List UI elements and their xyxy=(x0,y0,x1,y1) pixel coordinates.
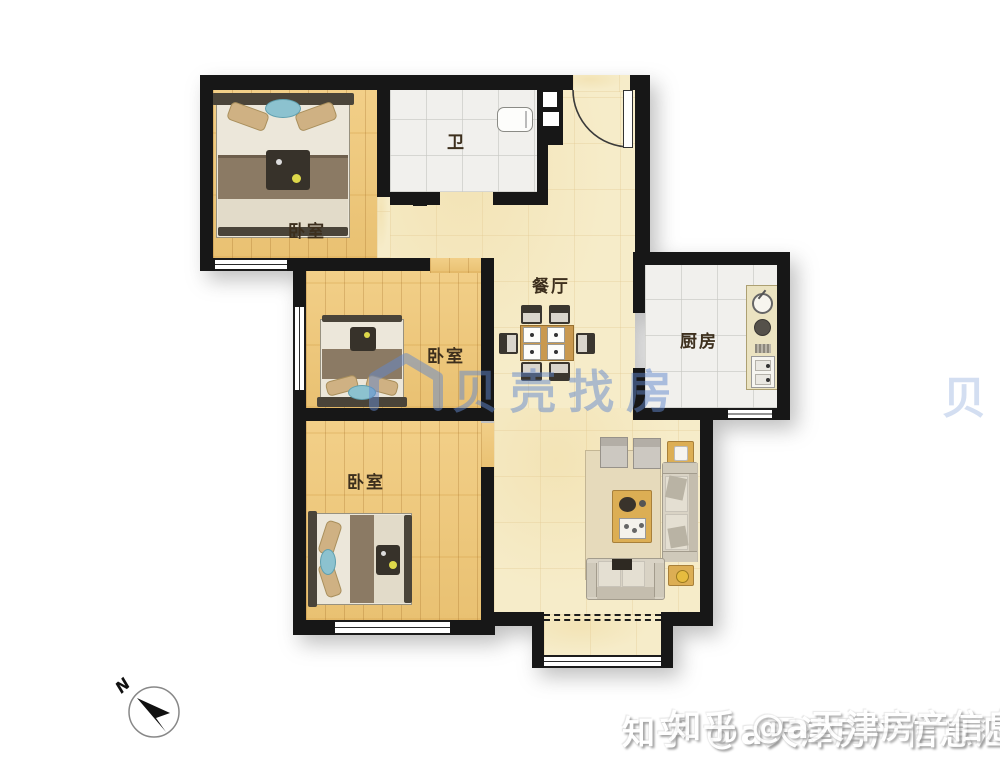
entrance-opening-floor xyxy=(573,75,630,92)
bathtub-divider xyxy=(525,111,527,128)
beike-watermark-text: 贝壳找房 xyxy=(452,356,684,422)
pot xyxy=(754,319,771,336)
bedroom-middle-door-opening xyxy=(430,258,481,273)
armchair-back xyxy=(601,438,627,446)
bedroom-top-door-opening xyxy=(377,197,390,258)
round-cushion xyxy=(320,549,336,575)
wall xyxy=(777,252,790,420)
sofa-back xyxy=(689,463,698,562)
chair-cushion xyxy=(551,313,568,322)
headboard xyxy=(308,511,317,607)
living-room-set xyxy=(585,435,700,601)
dining-chair xyxy=(521,305,542,324)
plate-dot xyxy=(554,333,558,337)
plate-dot xyxy=(554,350,558,354)
bed-bottom-bedroom xyxy=(308,513,412,605)
tray-item xyxy=(364,332,370,338)
coffee-table xyxy=(612,490,652,543)
sofa-armrest xyxy=(663,551,697,562)
sofa-armrest xyxy=(587,563,597,597)
bedroom-bottom-door-opening xyxy=(481,423,494,469)
beike-watermark-partial: 贝 xyxy=(942,362,986,426)
wall xyxy=(293,390,306,635)
console-item xyxy=(612,559,632,570)
sofa-long xyxy=(662,462,698,562)
bed-tray xyxy=(376,545,400,575)
round-cushion xyxy=(348,385,376,400)
duct-niche xyxy=(543,112,559,126)
compass: N xyxy=(100,660,200,760)
footboard xyxy=(322,315,402,322)
sofa-armrest xyxy=(654,563,664,597)
bathtub xyxy=(497,107,533,132)
entrance-door-leaf xyxy=(623,90,633,148)
wall xyxy=(481,467,494,635)
door-stub xyxy=(413,197,427,206)
teacup xyxy=(639,500,646,507)
tray-item xyxy=(381,551,386,556)
chair-cushion xyxy=(578,335,587,352)
wall xyxy=(200,75,213,271)
blanket xyxy=(350,515,374,603)
wall xyxy=(772,408,790,420)
kitchen-counter xyxy=(746,285,778,390)
bowl xyxy=(676,570,689,583)
plate-dot xyxy=(530,333,534,337)
tray-item xyxy=(292,174,301,183)
side-table xyxy=(668,565,694,586)
footboard xyxy=(404,515,412,603)
armchair xyxy=(633,438,661,469)
armchair-back xyxy=(634,439,660,447)
burner xyxy=(755,374,771,385)
bed-tray xyxy=(266,150,310,190)
zhihu-credit-watermark-ghost: 知乎 @a天津房产信息汇 xyxy=(668,700,1000,748)
burner xyxy=(755,360,771,371)
room-label-bedroom-top: 卧室 xyxy=(288,217,326,242)
tray-item xyxy=(276,159,282,165)
floor-plan-image: 卧室 卫 餐厅 厨房 卧室 卧室 贝壳找房 贝 N 知乎 @a天津房产信息汇 知… xyxy=(0,0,1000,767)
sofa-loveseat xyxy=(586,558,665,600)
sofa-back xyxy=(597,587,655,599)
dining-chair xyxy=(576,333,595,354)
sofa-pillow xyxy=(667,526,688,549)
cup-dot xyxy=(624,524,629,529)
burner-knob xyxy=(766,378,770,382)
dish-rack xyxy=(755,344,771,353)
room-label-bedroom-bottom: 卧室 xyxy=(347,468,385,493)
cup-dot xyxy=(639,523,644,528)
kitchen-sink xyxy=(752,293,773,314)
armchair xyxy=(600,437,628,468)
room-label-bathroom: 卫 xyxy=(447,128,466,153)
tea-tray xyxy=(619,518,646,539)
wall xyxy=(635,252,790,265)
room-label-dining: 餐厅 xyxy=(532,272,570,297)
dining-chair xyxy=(549,305,570,324)
bed-tray xyxy=(350,327,376,351)
cup xyxy=(674,446,688,461)
tray-item xyxy=(389,561,397,569)
blanket xyxy=(322,349,402,379)
wall xyxy=(377,90,390,197)
bed-top-bedroom xyxy=(216,93,350,238)
chair-cushion xyxy=(523,313,540,322)
plate xyxy=(547,327,565,343)
wall xyxy=(635,75,650,265)
window xyxy=(335,620,450,635)
cup-dot xyxy=(632,528,637,533)
duct-niche xyxy=(543,92,557,107)
balcony-wall xyxy=(661,612,673,668)
window xyxy=(293,307,306,390)
balcony-opening-dashed-line xyxy=(544,614,661,621)
wall xyxy=(306,258,430,271)
sofa-armrest xyxy=(663,463,697,474)
compass-icon xyxy=(100,660,200,760)
window xyxy=(215,258,287,271)
bed-middle-bedroom xyxy=(320,315,404,407)
wall xyxy=(287,258,306,271)
balcony-floor xyxy=(544,615,661,658)
wall xyxy=(633,252,645,313)
plate-dot xyxy=(530,350,534,354)
teapot xyxy=(619,497,636,512)
window xyxy=(728,408,772,420)
chair-cushion xyxy=(507,335,516,352)
wall xyxy=(200,75,573,90)
plate xyxy=(523,327,541,343)
footboard xyxy=(218,227,348,236)
stove xyxy=(751,356,775,388)
dining-chair xyxy=(499,333,518,354)
round-cushion xyxy=(265,99,301,118)
room-label-kitchen: 厨房 xyxy=(680,327,718,352)
balcony-window xyxy=(544,655,661,668)
bed-runner xyxy=(218,199,348,229)
burner-knob xyxy=(766,364,770,368)
wall xyxy=(700,408,713,625)
